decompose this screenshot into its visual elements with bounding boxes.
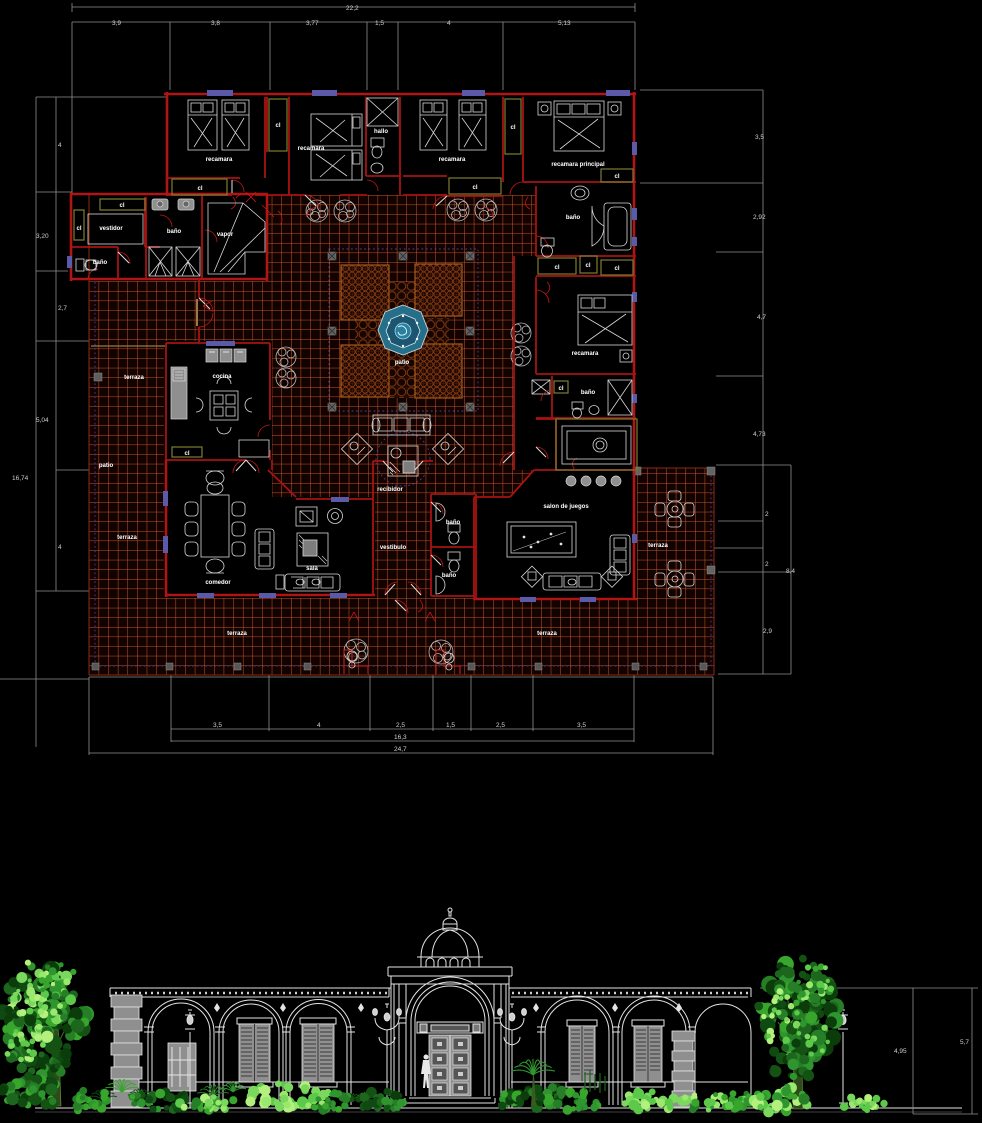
svg-text:cl: cl [119, 203, 124, 209]
svg-text:cl: cl [510, 125, 515, 131]
svg-text:8,4: 8,4 [786, 568, 795, 575]
svg-text:comedor: comedor [205, 580, 231, 586]
svg-text:3,20: 3,20 [36, 233, 49, 240]
svg-text:recamara: recamara [572, 351, 599, 357]
svg-text:3,77: 3,77 [306, 20, 319, 27]
svg-text:cl: cl [585, 263, 590, 269]
svg-text:4: 4 [58, 142, 62, 149]
svg-text:5,04: 5,04 [36, 417, 49, 424]
svg-text:3,8: 3,8 [211, 20, 220, 27]
svg-text:cl: cl [197, 186, 202, 192]
svg-text:1,5: 1,5 [446, 722, 455, 729]
svg-text:2: 2 [765, 511, 769, 518]
svg-text:terraza: terraza [648, 543, 668, 549]
svg-text:4,95: 4,95 [894, 1048, 907, 1055]
svg-text:cl: cl [614, 266, 619, 272]
svg-text:baño: baño [93, 260, 108, 266]
svg-text:terraza: terraza [227, 631, 247, 637]
svg-text:recamara principal: recamara principal [551, 162, 605, 168]
svg-text:cl: cl [184, 451, 189, 457]
svg-text:2,9: 2,9 [763, 628, 772, 635]
svg-text:recamara: recamara [206, 157, 233, 163]
svg-text:5,7: 5,7 [960, 1039, 969, 1046]
svg-text:24,7: 24,7 [394, 746, 407, 753]
svg-text:3,5: 3,5 [213, 722, 222, 729]
svg-text:cl: cl [554, 265, 559, 271]
svg-text:5,13: 5,13 [558, 20, 571, 27]
svg-text:terraza: terraza [124, 375, 144, 381]
svg-text:2,7: 2,7 [58, 305, 67, 312]
svg-text:cl: cl [472, 185, 477, 191]
svg-text:vapor: vapor [217, 232, 234, 238]
svg-text:recamara: recamara [298, 146, 325, 152]
svg-text:4: 4 [447, 20, 451, 27]
svg-text:patio: patio [395, 360, 410, 366]
svg-text:sala: sala [306, 566, 318, 572]
svg-text:cl: cl [558, 386, 563, 392]
svg-text:terraza: terraza [117, 535, 137, 541]
svg-text:patio: patio [99, 463, 114, 469]
svg-text:baño: baño [167, 229, 182, 235]
svg-text:3,5: 3,5 [755, 134, 764, 141]
svg-text:terraza: terraza [537, 631, 557, 637]
svg-text:cocina: cocina [212, 374, 232, 380]
svg-text:hallo: hallo [374, 129, 388, 135]
svg-text:3,5: 3,5 [577, 722, 586, 729]
svg-text:baño: baño [442, 573, 457, 579]
svg-text:16,3: 16,3 [394, 734, 407, 741]
svg-text:4,7: 4,7 [757, 314, 766, 321]
svg-text:22,2: 22,2 [346, 5, 359, 12]
svg-text:baño: baño [446, 520, 461, 526]
svg-text:3,9: 3,9 [112, 20, 121, 27]
svg-text:16,74: 16,74 [12, 475, 29, 482]
svg-text:recibidor: recibidor [377, 487, 403, 493]
svg-text:cl: cl [614, 174, 619, 180]
svg-text:2,5: 2,5 [396, 722, 405, 729]
svg-text:4: 4 [58, 544, 62, 551]
svg-text:salon de juegos: salon de juegos [543, 504, 589, 510]
svg-text:cl: cl [76, 226, 81, 232]
svg-text:2,5: 2,5 [496, 722, 505, 729]
svg-text:1,5: 1,5 [375, 20, 384, 27]
svg-text:recamara: recamara [439, 157, 466, 163]
svg-text:2: 2 [765, 561, 769, 568]
svg-text:2,92: 2,92 [753, 214, 766, 221]
svg-text:4: 4 [317, 722, 321, 729]
svg-text:cl: cl [275, 123, 280, 129]
svg-text:baño: baño [581, 390, 596, 396]
svg-text:4,73: 4,73 [753, 431, 766, 438]
svg-text:vestidor: vestidor [99, 226, 123, 232]
svg-text:vestibulo: vestibulo [380, 545, 407, 551]
svg-text:baño: baño [566, 215, 581, 221]
